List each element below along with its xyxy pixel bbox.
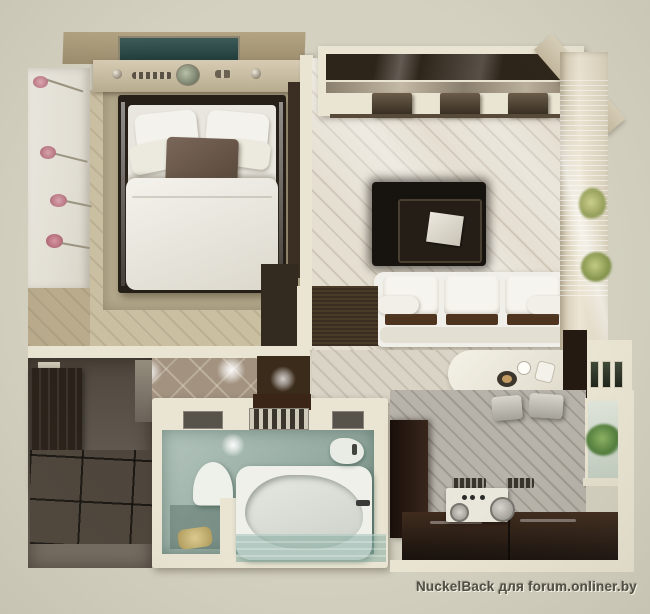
bar-stool (528, 393, 564, 419)
kitchen-bottom-wall (390, 560, 634, 572)
window-sill (583, 478, 623, 486)
bar-stool (491, 395, 523, 422)
sofa-seat-front (380, 327, 566, 343)
sofa-dark-gap (385, 314, 437, 325)
flower-bloom (46, 234, 63, 248)
bathroom-sink (330, 438, 364, 464)
wall-unit-glass-shelf (326, 82, 576, 93)
entry-mat-dark (312, 286, 378, 346)
watermark-text: NuckelBack для forum.onliner.by (416, 579, 637, 594)
bed-rail-left (121, 102, 125, 286)
table-cup (517, 361, 531, 375)
wood-strip-under-mural (28, 288, 90, 346)
wall-sliver (297, 286, 312, 348)
vent-slot (590, 361, 599, 388)
floor-plan-render: NuckelBack для forum.onliner.by (0, 0, 650, 614)
sofa-armrest-left (377, 296, 419, 314)
stove-dial (450, 503, 469, 522)
flower-bloom (40, 146, 56, 159)
shelf-decor-knob2 (251, 68, 261, 79)
kitchen-right-wall (618, 390, 634, 566)
bedroom-corner-cabinet (261, 264, 298, 346)
speaker-box (508, 93, 548, 116)
window-plant-upper (579, 188, 606, 220)
flower-bloom (33, 76, 48, 88)
shelf-decor-cluster (132, 72, 172, 79)
kitchen-clock-element (490, 497, 515, 522)
flower-bloom (50, 194, 67, 207)
bathroom-divider-wall (220, 498, 236, 568)
sink-faucet (352, 444, 357, 455)
coffee-cup (502, 375, 512, 383)
bathroom-slatted-grille (249, 408, 309, 430)
stove-knob (480, 495, 485, 500)
spotlight-glow (216, 356, 246, 384)
wall-unit-shelf-line (330, 114, 570, 118)
speaker-box (372, 93, 412, 116)
bathroom-vent-grille (332, 411, 364, 429)
duvet (126, 178, 278, 290)
bathroom-light-glow (220, 434, 246, 456)
coffee-table-book (426, 212, 464, 246)
bed-rail-right (279, 102, 283, 286)
shelf-decor-bowl (176, 64, 200, 86)
stove-knob (462, 495, 467, 500)
duvet-fold-line (132, 196, 272, 198)
bathtub-glass-panel (236, 534, 386, 562)
entry-doorway-glow (135, 360, 152, 422)
wall-unit-dark-band (326, 54, 576, 80)
spotlight-glow (270, 366, 296, 392)
vent-slot (614, 361, 623, 388)
flower-wall-mural (28, 68, 90, 290)
vent-slot (602, 361, 611, 388)
sofa-dark-gap (507, 314, 559, 325)
speaker-box (440, 93, 480, 116)
shelf-decor-pair (215, 70, 231, 78)
bathroom-vent-grille (183, 411, 223, 429)
sofa-dark-gap (446, 314, 498, 325)
kitchen-plant (586, 424, 622, 456)
entry-floor-tiles (30, 450, 152, 544)
bathtub-faucet (356, 500, 370, 506)
stove-knob (470, 495, 475, 500)
burner-grid (506, 478, 534, 488)
window-plant-lower (581, 252, 612, 282)
burner-grid (452, 478, 486, 488)
shelf-decor-knob (112, 69, 122, 79)
headboard-shelf (93, 60, 313, 92)
cabinet-handle (520, 519, 576, 522)
sofa-back-cushion (444, 276, 500, 316)
